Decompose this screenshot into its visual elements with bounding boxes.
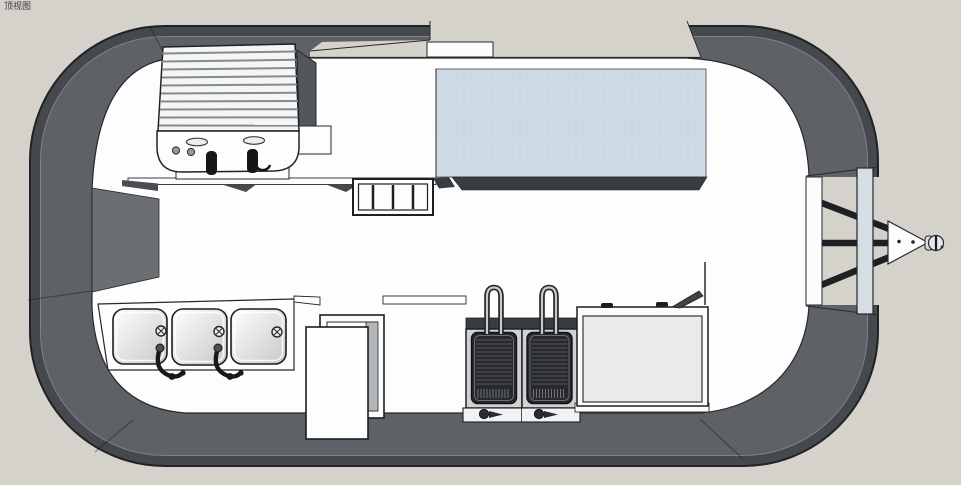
sink-basin <box>231 309 286 364</box>
griddle-side-panel <box>297 50 316 133</box>
chest-counter-lid[interactable] <box>583 316 702 402</box>
tray-rack[interactable] <box>353 179 433 215</box>
hitch-bolt <box>911 240 915 244</box>
chest-counter-hinge <box>601 303 613 308</box>
window-front-edge <box>452 177 707 190</box>
griddle-side-bracket <box>298 126 331 154</box>
serving-window-glass[interactable] <box>433 69 707 190</box>
griddle-knob[interactable] <box>206 151 217 175</box>
sink-unit[interactable] <box>98 296 320 380</box>
fryer-basket <box>472 333 517 404</box>
rear-wall-edge <box>806 177 822 305</box>
door-panel[interactable] <box>306 327 368 439</box>
model-drawing <box>0 0 961 485</box>
griddle-fitting <box>172 147 179 154</box>
griddle-drain-slot <box>244 137 265 145</box>
sink-basin <box>172 309 227 365</box>
viewport-canvas[interactable]: 顶视图 <box>0 0 961 485</box>
counter-edge-connector <box>383 296 466 304</box>
griddle-drain-slot <box>187 138 208 146</box>
fryer-back-band <box>466 318 578 329</box>
fryer-basket <box>527 333 572 404</box>
rear-bumper <box>857 168 873 314</box>
view-label: 顶视图 <box>4 2 31 13</box>
hitch-bolt <box>897 240 901 244</box>
chest-counter-hinge <box>656 302 668 307</box>
griddle-fitting <box>187 148 194 155</box>
hitch-coupler-plate <box>888 221 928 264</box>
wall-inner-face <box>92 188 159 292</box>
window-hatch-sill <box>427 42 493 57</box>
hitch-coupler-ball <box>925 236 944 251</box>
